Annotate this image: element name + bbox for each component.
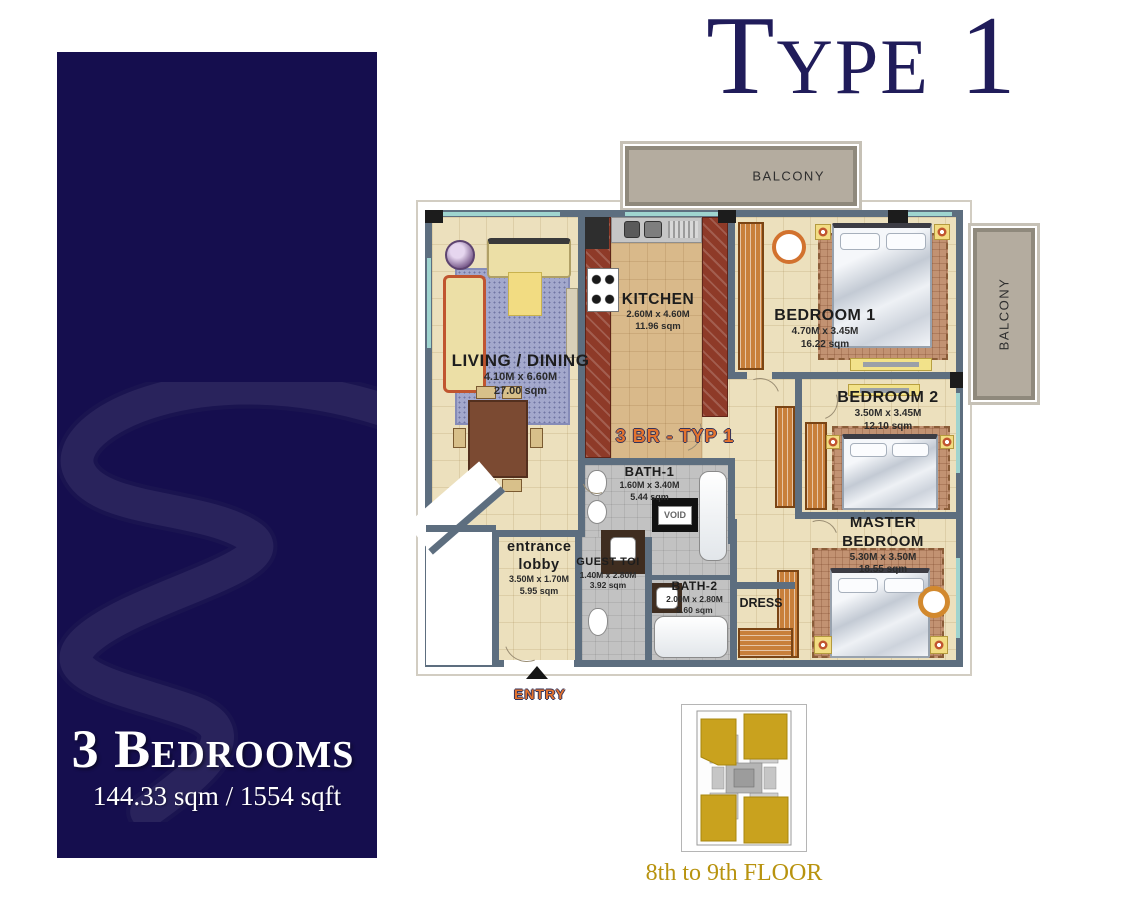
side-table	[445, 240, 475, 270]
room-label-living: LIVING / DINING 4.10M x 6.60M 27.00 sqm	[438, 350, 603, 399]
entry-label: ENTRY	[492, 686, 588, 702]
room-area: 5.44 sqm	[592, 492, 707, 503]
balcony-top-label: BALCONY	[752, 169, 825, 184]
room-dims: 2.00M x 2.80M	[652, 594, 737, 605]
room-area: 3.92 sqm	[576, 580, 640, 591]
room-name: BEDROOM 1	[740, 306, 910, 326]
room-name: entrance lobby	[507, 538, 571, 574]
balcony-top: BALCONY	[625, 146, 857, 206]
bathtub	[654, 616, 728, 658]
room-dims: 1.60M x 3.40M	[592, 480, 707, 491]
wall	[492, 530, 499, 667]
room-label-bedroom1: BEDROOM 1 4.70M x 3.45M 16.22 sqm	[740, 306, 910, 351]
dining-chair	[530, 428, 543, 448]
balcony-right-label: BALCONY	[997, 278, 1012, 351]
armchair	[772, 230, 806, 264]
bedrooms-heading: 3 Bedrooms	[57, 718, 369, 780]
room-dims: 3.50M x 1.70M	[500, 574, 578, 585]
room-area: 16.22 sqm	[740, 339, 910, 352]
sink	[644, 221, 662, 238]
room-area: 5.95 sqm	[500, 586, 578, 597]
dining-chair	[453, 428, 466, 448]
dining-chair	[502, 479, 522, 492]
wall	[578, 210, 585, 460]
pillow	[884, 578, 924, 593]
wardrobe	[805, 422, 827, 510]
pillow	[850, 443, 887, 457]
sidebar-panel: 3 Bedrooms 144.33 sqm / 1554 sqft	[57, 52, 377, 858]
room-area: 11.96 sqm	[598, 321, 718, 333]
room-dims: 4.10M x 6.60M	[438, 371, 603, 385]
window	[440, 212, 560, 216]
room-label-guest-toilet: GUEST TOI 1.40M x 2.80M 3.92 sqm	[576, 556, 640, 591]
room-name: LIVING / DINING	[438, 350, 603, 371]
void-label: VOID	[658, 506, 692, 525]
wall	[426, 525, 496, 532]
dress-wardrobe	[738, 628, 793, 658]
room-label-bath1: BATH-1 1.60M x 3.40M 5.44 sqm	[592, 464, 707, 503]
corridor-wardrobe	[775, 406, 795, 508]
wall	[735, 372, 747, 379]
window	[427, 258, 431, 348]
keyplan-caption: 8th to 9th FLOOR	[614, 860, 854, 887]
room-name: BATH-1	[592, 464, 707, 480]
room-name: KITCHEN	[598, 290, 718, 309]
window	[625, 212, 720, 216]
room-label-master: MASTER BEDROOM 5.30M x 3.50M 18.55 sqm	[808, 514, 958, 577]
column	[425, 210, 443, 223]
nightstand	[814, 636, 832, 654]
room-area: 27.00 sqm	[438, 385, 603, 399]
keyplan-thumbnail	[681, 704, 807, 852]
column	[888, 210, 908, 223]
room-name: BEDROOM 2	[818, 388, 958, 408]
room-area: 5.60 sqm	[652, 605, 737, 616]
floorplan: BALCONY BALCONY	[420, 138, 1036, 718]
tv-console	[850, 358, 932, 371]
entry-arrow-icon	[526, 666, 548, 679]
room-dims: 4.70M x 3.45M	[740, 326, 910, 339]
keyplan-diagram	[682, 705, 806, 851]
nightstand	[815, 224, 831, 240]
room-name: BATH-2	[652, 579, 737, 594]
sink	[624, 221, 640, 238]
room-name: GUEST TOI	[576, 556, 640, 570]
room-label-dress: DRESS	[726, 596, 796, 612]
wall	[645, 537, 652, 667]
unit-type-label: 3 BR - TYP 1	[590, 426, 760, 447]
wall	[737, 582, 795, 589]
room-dims: 5.30M x 3.50M	[808, 552, 958, 565]
room-area: 18.55 sqm	[808, 564, 958, 577]
room-label-kitchen: KITCHEN 2.60M x 4.60M 11.96 sqm	[598, 290, 718, 333]
drainboard	[668, 221, 698, 238]
wall	[772, 372, 963, 379]
room-dims: 1.40M x 2.80M	[576, 570, 640, 581]
nightstand	[930, 636, 948, 654]
bidet	[587, 500, 607, 524]
room-area: 12.10 sqm	[818, 421, 958, 434]
nightstand	[940, 435, 954, 449]
room-label-bedroom2: BEDROOM 2 3.50M x 3.45M 12.10 sqm	[818, 388, 958, 433]
room-dims: 2.60M x 4.60M	[598, 309, 718, 321]
console	[566, 288, 578, 358]
pillow	[840, 233, 880, 250]
coffee-table	[508, 272, 542, 316]
wall	[728, 210, 735, 379]
toilet	[588, 608, 608, 636]
unit-area-text: 144.33 sqm / 1554 sqft	[57, 781, 377, 812]
room-dims: 3.50M x 3.45M	[818, 408, 958, 421]
fridge	[585, 217, 609, 249]
pillow	[892, 443, 929, 457]
nightstand	[826, 435, 840, 449]
room-label-lobby: entrance lobby 3.50M x 1.70M 5.95 sqm	[500, 538, 578, 597]
room-label-bath2: BATH-2 2.00M x 2.80M 5.60 sqm	[652, 579, 737, 615]
balcony-right: BALCONY	[973, 228, 1035, 400]
wall	[494, 530, 585, 537]
pillow	[886, 233, 926, 250]
page-title: Type 1	[688, 0, 1036, 112]
kitchen-counter	[585, 217, 611, 458]
column	[718, 210, 736, 223]
room-name: MASTER BEDROOM	[827, 514, 939, 552]
nightstand	[934, 224, 950, 240]
pillow	[838, 578, 878, 593]
column	[950, 372, 963, 388]
void-shaft: VOID	[652, 498, 698, 532]
